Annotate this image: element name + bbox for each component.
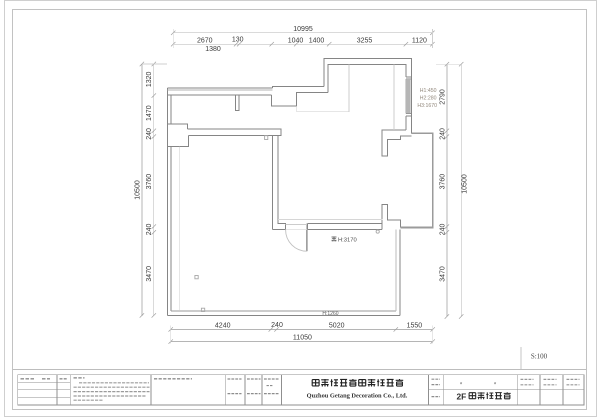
svg-text:10500: 10500 — [134, 180, 141, 200]
svg-text:130: 130 — [232, 37, 244, 44]
svg-text:240: 240 — [146, 128, 153, 140]
svg-text:3760: 3760 — [146, 174, 153, 190]
svg-text:240: 240 — [146, 223, 153, 235]
svg-text:H1:450: H1:450 — [420, 88, 437, 94]
svg-text:H3:1670: H3:1670 — [417, 103, 437, 109]
svg-text:1040: 1040 — [288, 37, 304, 44]
svg-text:2670: 2670 — [197, 37, 213, 44]
svg-text:10500: 10500 — [461, 174, 468, 194]
svg-text:S:100: S:100 — [531, 353, 548, 361]
svg-text:3255: 3255 — [357, 37, 373, 44]
svg-text:5020: 5020 — [329, 323, 345, 330]
svg-text:2790: 2790 — [439, 89, 446, 105]
svg-text:1380: 1380 — [205, 46, 221, 53]
svg-text:3470: 3470 — [146, 266, 153, 282]
svg-text:240: 240 — [439, 223, 446, 235]
svg-text:3470: 3470 — [439, 266, 446, 282]
svg-text:4240: 4240 — [215, 323, 231, 330]
svg-text:1320: 1320 — [146, 72, 153, 88]
svg-text:Quzhou Getang Decoration Co.,: Quzhou Getang Decoration Co., Ltd. — [307, 393, 408, 400]
svg-text:1550: 1550 — [407, 323, 423, 330]
svg-text:1400: 1400 — [309, 37, 325, 44]
svg-text:1120: 1120 — [412, 37, 427, 44]
svg-text:240: 240 — [439, 128, 446, 140]
svg-text:3760: 3760 — [439, 174, 446, 190]
svg-text:H:3170: H:3170 — [338, 237, 357, 243]
svg-text:240: 240 — [271, 322, 283, 329]
svg-text:2F: 2F — [457, 391, 467, 401]
svg-text:10995: 10995 — [293, 26, 313, 33]
svg-text:1470: 1470 — [146, 105, 153, 121]
svg-text:H2:280: H2:280 — [420, 96, 437, 102]
svg-text:H:1260: H:1260 — [322, 311, 338, 317]
svg-text:11050: 11050 — [293, 335, 312, 342]
